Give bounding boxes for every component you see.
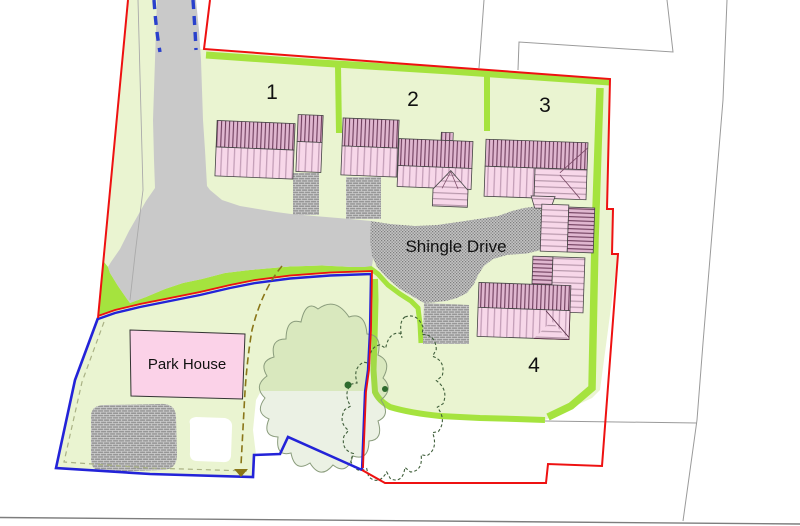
- svg-text:1: 1: [266, 81, 278, 104]
- svg-text:3: 3: [539, 94, 551, 117]
- svg-text:Park House: Park House: [148, 356, 226, 373]
- svg-text:Shingle Drive: Shingle Drive: [405, 237, 506, 256]
- svg-text:2: 2: [407, 88, 419, 111]
- svg-text:4: 4: [528, 354, 540, 377]
